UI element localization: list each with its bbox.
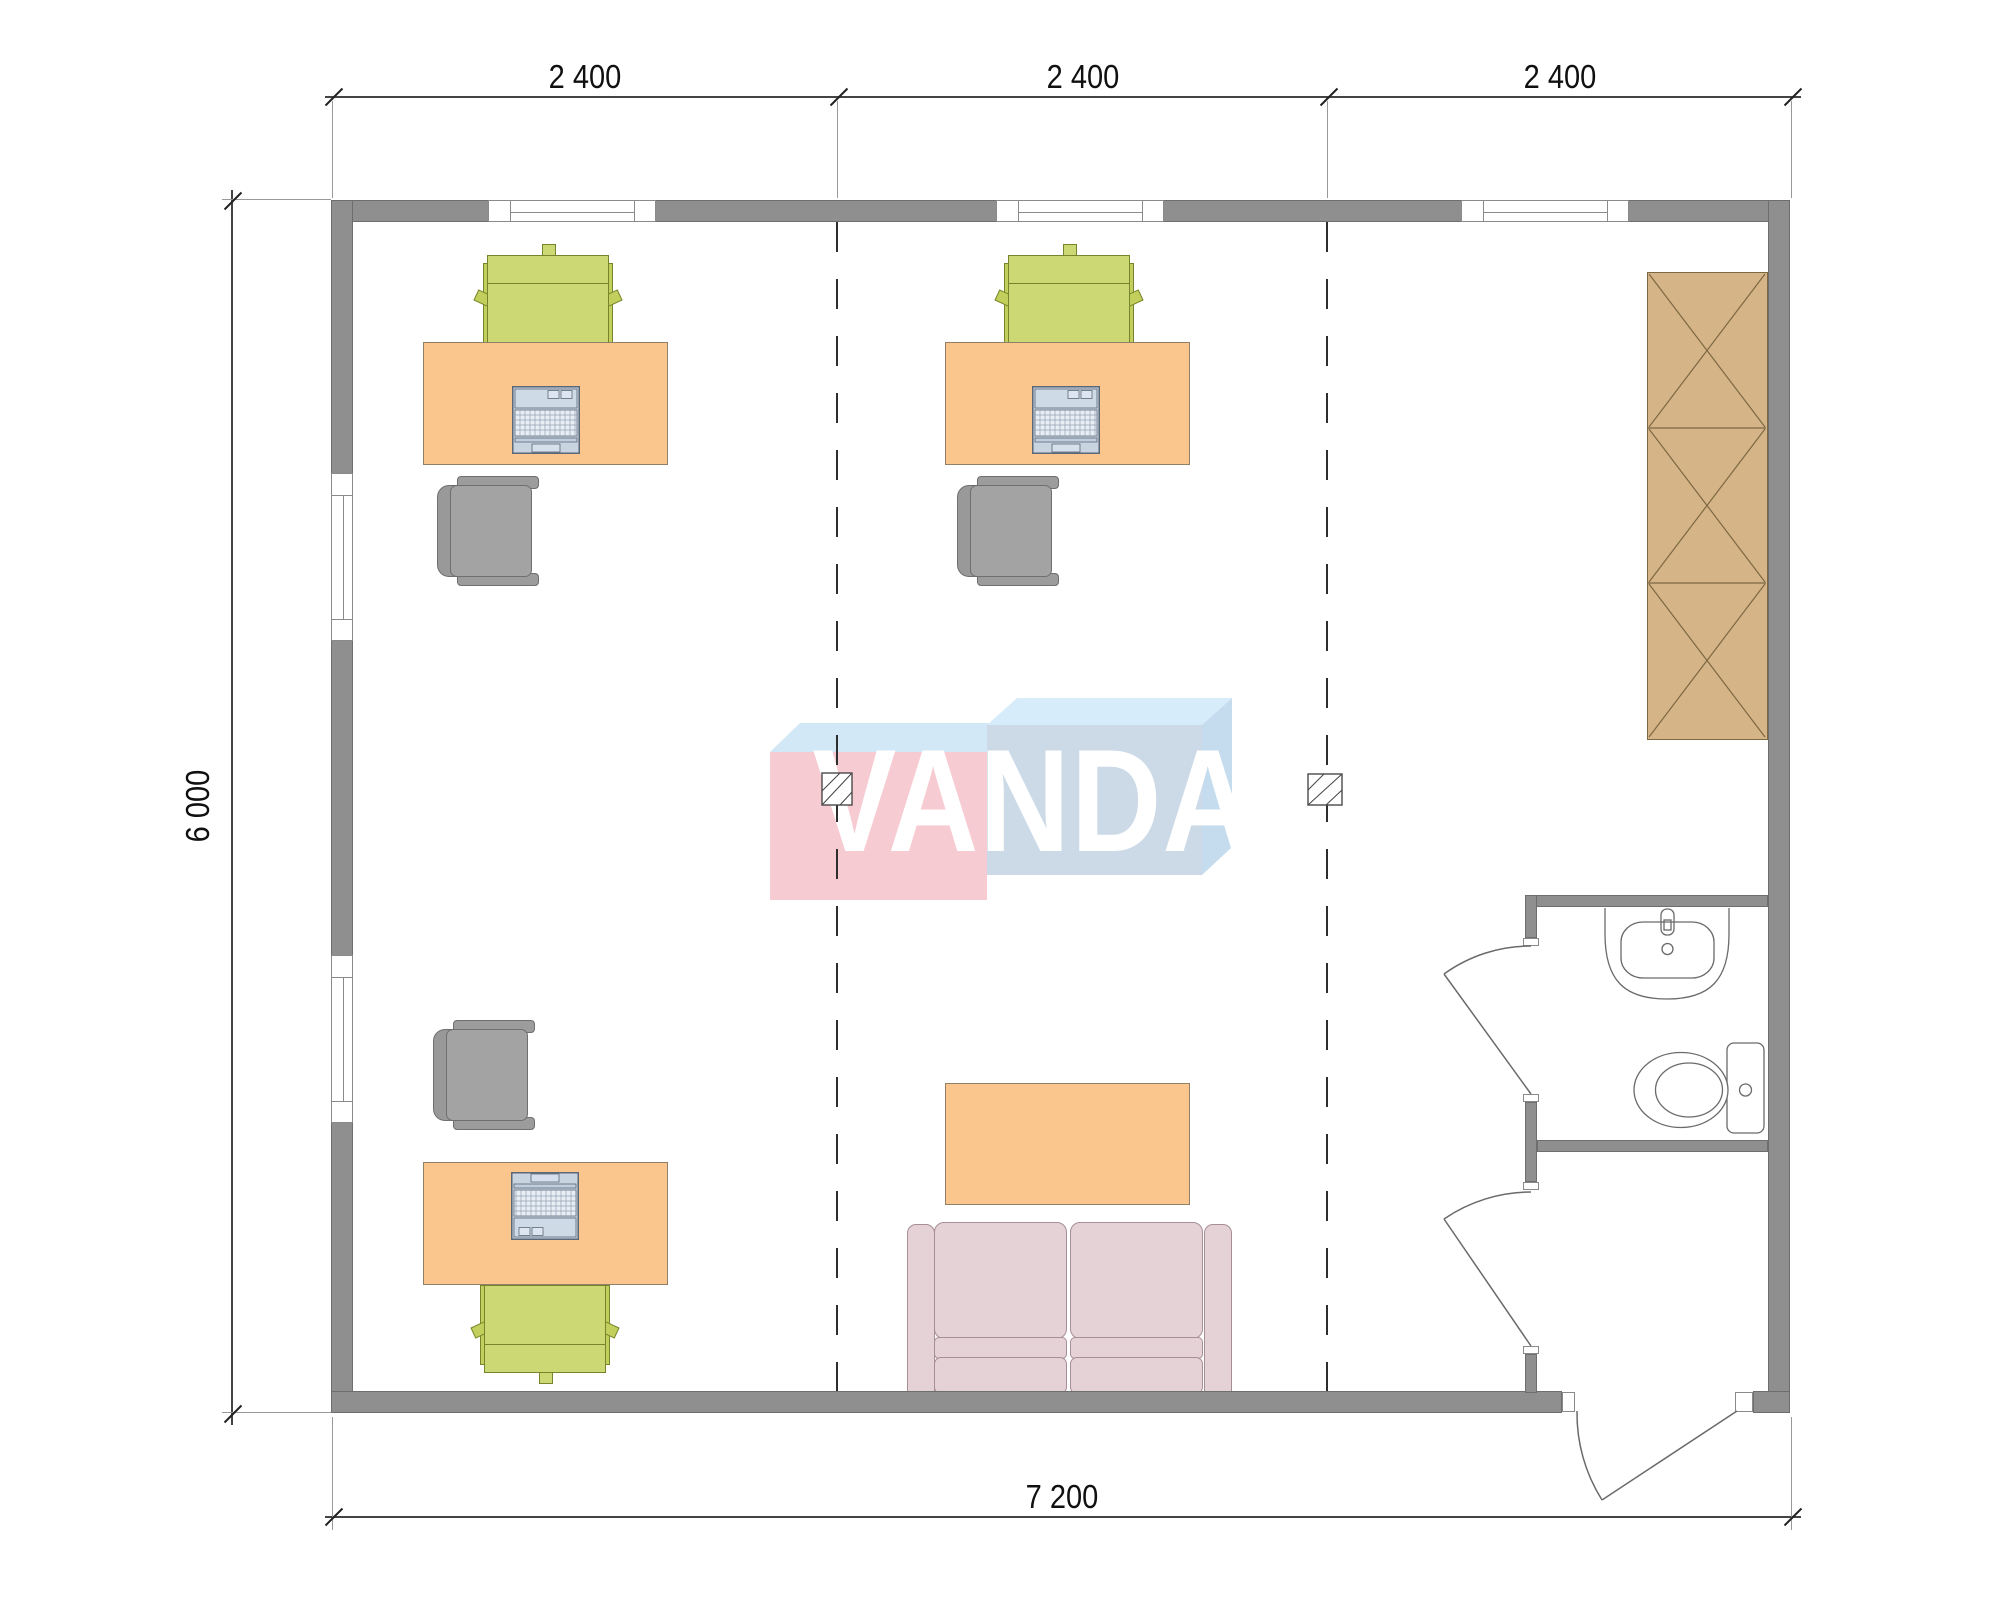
sofa [907,1222,1232,1405]
dimension-label: 2 400 [1524,58,1597,96]
sofa-seat-cushion [1070,1337,1203,1359]
office-chair [1001,243,1141,343]
door-jamb [1735,1392,1753,1412]
extension-line [1791,1417,1792,1530]
hall-door [1444,1192,1531,1346]
sofa-back-cushion [934,1222,1067,1339]
module-grid-line [1326,222,1328,1391]
dimension-tick [224,192,242,210]
laptop-icon [512,386,580,454]
junction-box-icon [1308,774,1342,805]
wall-bottom [1753,1391,1790,1413]
window [996,200,1164,222]
module-grid-line [836,222,838,1391]
extension-line [332,1417,333,1530]
dimension-line-top [325,96,1801,98]
floor-plan-canvas: VANDA [0,0,2000,1599]
door-jamb [1523,938,1539,946]
dimension-label: 7 200 [1026,1478,1099,1516]
chair-headrest [539,1372,553,1384]
extension-line [222,1412,331,1413]
sofa-armrest [907,1224,935,1403]
visitor-chair [957,476,1064,586]
wall-bathroom-top [1525,895,1768,907]
extension-line [222,199,331,200]
chair-seat [450,485,532,577]
door-jamb [1523,1094,1539,1102]
chair-back-line [1009,283,1129,284]
dimension-line-bottom [325,1516,1801,1518]
logo-wordmark: VANDA [813,728,1200,874]
entrance-door [1577,1411,1737,1500]
sink [1605,908,1729,999]
window [1461,200,1629,222]
window [331,473,353,641]
wall-bathroom-bottom [1537,1140,1768,1152]
wall-bottom [331,1391,1562,1413]
wall-left [331,200,353,1413]
door-jamb [1523,1346,1539,1354]
office-chair [477,1285,617,1385]
laptop-icon [1032,386,1100,454]
extension-line [1791,101,1792,198]
toilet [1634,1043,1764,1133]
wall-right [1768,200,1790,1413]
chair-seat [1008,255,1130,343]
chair-seat [446,1029,528,1121]
door-jamb [1523,1182,1539,1190]
window [331,955,353,1123]
wall-partition [1525,1354,1537,1393]
wall-partition [1525,1102,1537,1182]
wardrobe [1647,272,1768,740]
chair-seat [487,255,609,343]
window [488,200,656,222]
sofa-seat-cushion [934,1337,1067,1359]
chair-back-line [485,1344,605,1345]
bathroom-door [1444,946,1531,1094]
visitor-chair [433,1020,540,1130]
sofa-seat-cushion [1070,1357,1203,1394]
dimension-label: 2 400 [549,58,622,96]
chair-seat [484,1285,606,1373]
extension-line [332,101,333,198]
dimension-tick [224,1405,242,1423]
dimension-label: 2 400 [1047,58,1120,96]
sofa-back-cushion [1070,1222,1203,1339]
extension-line [837,101,838,198]
laptop-icon [511,1172,579,1240]
dimension-label: 6 000 [179,770,217,843]
door-jamb [1562,1392,1575,1412]
visitor-chair [437,476,544,586]
sofa-armrest [1204,1224,1232,1403]
office-chair [480,243,620,343]
extension-line [1327,101,1328,198]
coffee-table [945,1083,1190,1205]
wall-partition [1525,895,1537,938]
chair-seat [970,485,1052,577]
sofa-seat-cushion [934,1357,1067,1394]
wardrobe-cross-doors [1648,273,1766,738]
dimension-line-left [231,190,233,1425]
chair-back-line [488,283,608,284]
